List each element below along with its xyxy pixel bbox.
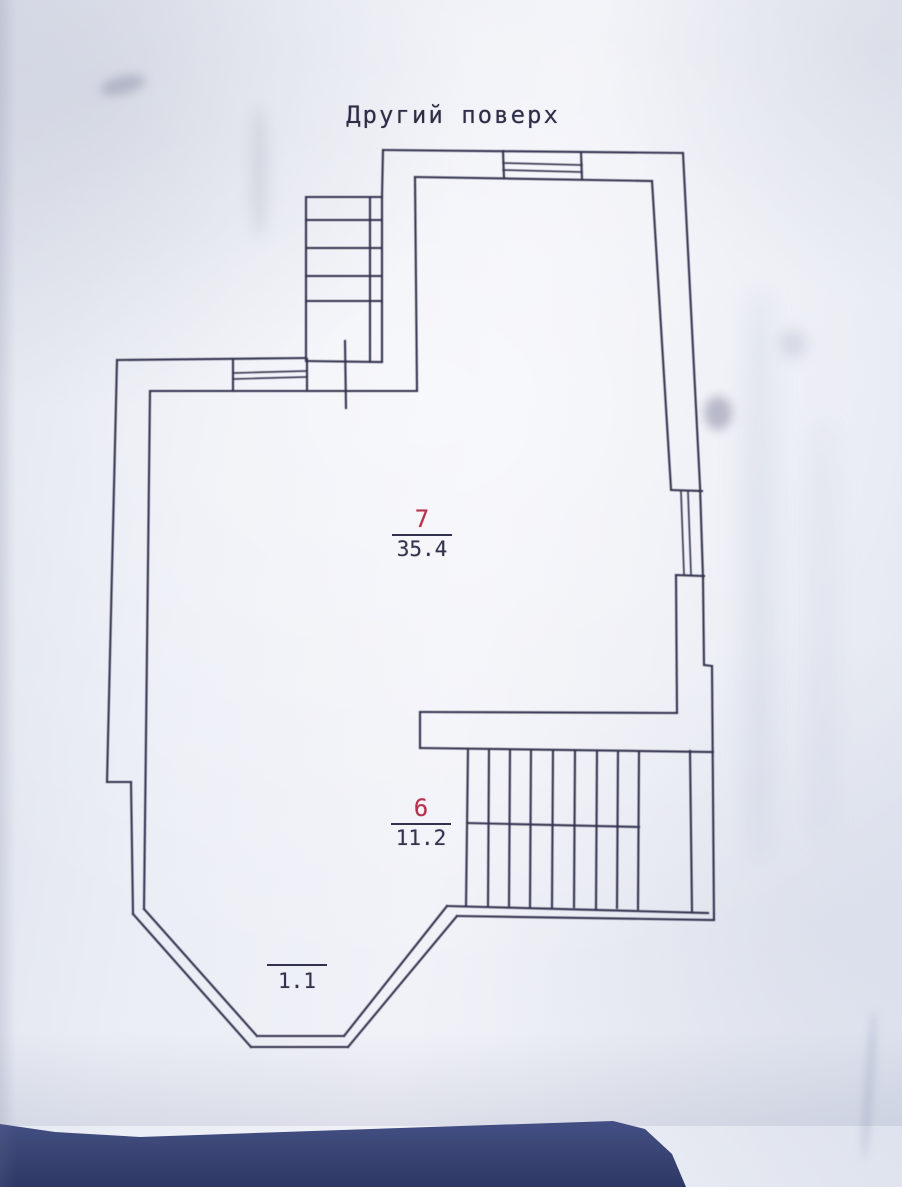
floor-plan-photo: Другий поверх 7 35.4 6 11.2 1.1 — [0, 0, 902, 1187]
table-edge — [0, 0, 902, 1187]
